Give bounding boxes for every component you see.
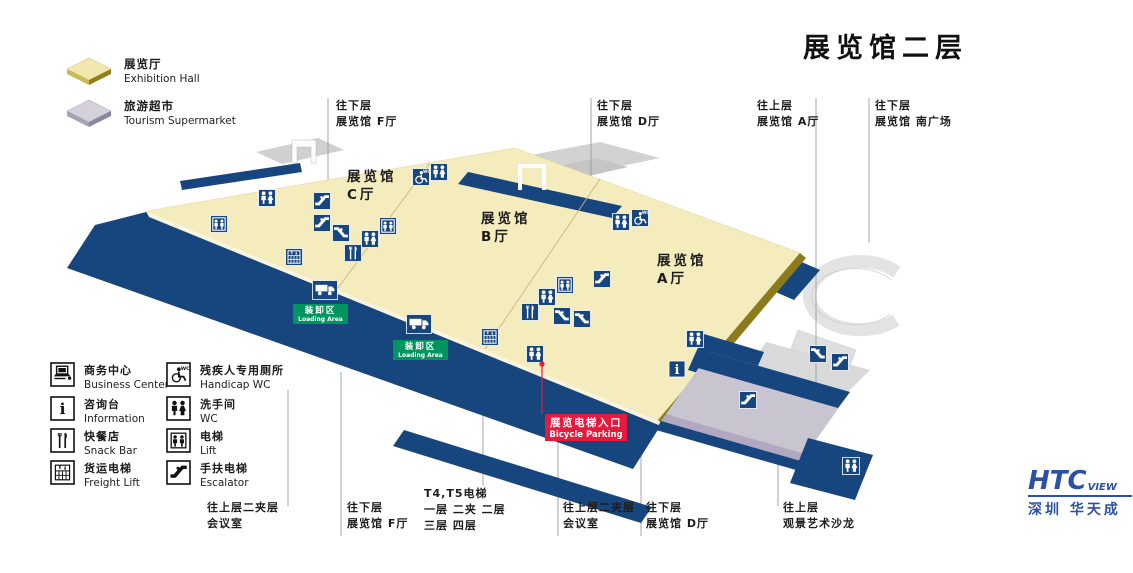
legend-cn: 残疾人专用厕所 <box>200 362 284 378</box>
callout-down-hall-f: 往下层 展览馆 F厅 <box>336 98 397 130</box>
svg-text:Loading Area: Loading Area <box>298 316 343 323</box>
freight-lift-icon <box>286 249 303 266</box>
svg-text:B厅: B厅 <box>481 229 511 245</box>
callout-down-hall-f-bottom: 往下层 展览馆 F厅 <box>347 500 408 532</box>
escalator-icon <box>594 271 611 288</box>
callout-t4-t5-lift: T4,T5电梯 一层 二夹 二层 三层 四层 <box>424 486 506 534</box>
lift-icon <box>211 216 228 233</box>
freight-lift-icon <box>50 460 75 485</box>
legend-cn: 货运电梯 <box>84 460 140 476</box>
loading-area-label: 装卸区 Loading Area <box>293 304 348 324</box>
callout-up-mezzanine-meeting: 往上层二夹层 会议室 <box>207 500 279 532</box>
wc-icon <box>527 346 544 363</box>
legend-cn: 手扶电梯 <box>200 460 249 476</box>
information-icon <box>50 396 75 421</box>
legend-item-escalator: 手扶电梯Escalator <box>166 460 249 489</box>
callout-line: 往上层 <box>757 98 819 114</box>
svg-text:装卸区: 装卸区 <box>304 305 337 316</box>
legend-item-handicap-wc: 残疾人专用厕所Handicap WC <box>166 362 284 391</box>
legend-en: Business Center <box>84 379 169 391</box>
callout-line: 往下层 <box>597 98 660 114</box>
svg-text:A厅: A厅 <box>657 271 687 287</box>
callout-down-hall-d-bottom: 往下层 展览馆 D厅 <box>646 500 709 532</box>
callout-line: 往下层 <box>875 98 952 114</box>
handicap-wc-icon <box>413 169 431 186</box>
legend-cn: 咨询台 <box>84 396 145 412</box>
callout-line: 一层 二夹 二层 <box>424 502 506 518</box>
escalator-icon <box>740 392 757 409</box>
escalator-icon <box>314 193 331 210</box>
callout-line: 展览馆 F厅 <box>347 516 408 532</box>
wc-icon <box>843 458 860 475</box>
legend-en: Snack Bar <box>84 445 137 457</box>
freight-lift-icon <box>482 329 499 346</box>
callout-line: 往上层 <box>783 500 855 516</box>
legend-item-freight-lift: 货运电梯Freight Lift <box>50 460 140 489</box>
callout-line: 展览馆 A厅 <box>757 114 819 130</box>
svg-text:C厅: C厅 <box>347 187 376 203</box>
snack-bar-icon <box>522 304 539 321</box>
svg-text:装卸区: 装卸区 <box>404 341 437 352</box>
legend-item-information: 咨询台Information <box>50 396 145 425</box>
svg-text:Bicycle Parking: Bicycle Parking <box>549 430 622 440</box>
callout-line: T4,T5电梯 <box>424 486 506 502</box>
snack-bar-icon <box>345 245 362 262</box>
escalator-down-icon <box>574 311 591 328</box>
legend-en: Handicap WC <box>200 379 284 391</box>
legend-item-business-center: 商务中心Business Center <box>50 362 169 391</box>
escalator-icon <box>166 460 191 485</box>
logo-htc-text: HTC <box>1028 468 1087 494</box>
entrance-dot <box>539 361 544 366</box>
handicap-wc-icon <box>632 210 650 227</box>
callout-line: 往下层 <box>336 98 397 114</box>
escalator-down-icon <box>554 308 571 325</box>
callout-line: 会议室 <box>207 516 279 532</box>
svg-text:展览馆: 展览馆 <box>657 252 707 269</box>
callout-up-hall-a: 往上层 展览馆 A厅 <box>757 98 819 130</box>
callout-line: 会议室 <box>563 516 635 532</box>
callout-line: 展览馆 D厅 <box>646 516 709 532</box>
logo-tagline: 深圳 华天成 <box>1028 499 1132 519</box>
legend-cn: 快餐店 <box>84 428 137 444</box>
spiral-ramp <box>809 262 897 330</box>
legend-en: Freight Lift <box>84 477 140 489</box>
callout-up-mezzanine-meeting-2: 往上层二夹层 会议室 <box>563 500 635 532</box>
svg-text:展览馆: 展览馆 <box>347 168 397 185</box>
callout-line: 展览馆 南广场 <box>875 114 952 130</box>
lift-icon <box>380 218 397 235</box>
htcview-logo: HTC VIEW 深圳 华天成 <box>1028 468 1132 519</box>
wc-icon <box>539 289 556 306</box>
callout-line: 往下层 <box>646 500 709 516</box>
callout-down-south-plaza: 往下层 展览馆 南广场 <box>875 98 952 130</box>
spiral-ramp-edge <box>812 269 891 325</box>
wc-icon <box>687 331 704 348</box>
legend-cn: 电梯 <box>200 428 224 444</box>
callout-line: 往上层二夹层 <box>207 500 279 516</box>
wc-icon <box>259 190 276 207</box>
wc-icon <box>166 396 191 421</box>
wc-icon <box>431 164 448 181</box>
lift-icon <box>557 277 574 294</box>
escalator-icon <box>832 354 849 371</box>
logo-view-text: VIEW <box>1088 483 1117 493</box>
escalator-down-icon <box>810 346 827 363</box>
information-icon <box>669 361 685 378</box>
callout-line: 往下层 <box>347 500 408 516</box>
handicap-wc-icon <box>166 362 191 387</box>
callout-line: 展览馆 D厅 <box>597 114 660 130</box>
truck-icon <box>407 315 432 334</box>
callout-line: 展览馆 F厅 <box>336 114 397 130</box>
truck-icon <box>313 281 338 300</box>
loading-area-label: 装卸区 Loading Area <box>393 340 448 360</box>
legend-en: Lift <box>200 445 224 457</box>
lift-icon <box>166 428 191 453</box>
svg-text:Loading Area: Loading Area <box>398 352 443 359</box>
callout-up-art-salon: 往上层 观景艺术沙龙 <box>783 500 855 532</box>
escalator-down-icon <box>333 225 350 242</box>
callout-line: 往上层二夹层 <box>563 500 635 516</box>
legend-en: WC <box>200 413 236 425</box>
snack-bar-icon <box>50 428 75 453</box>
callout-down-hall-d: 往下层 展览馆 D厅 <box>597 98 660 130</box>
wc-icon <box>613 214 630 231</box>
legend-en: Escalator <box>200 477 249 489</box>
callout-line: 三层 四层 <box>424 518 506 534</box>
legend-cn: 洗手间 <box>200 396 236 412</box>
legend-cn: 商务中心 <box>84 362 169 378</box>
legend-item-snack-bar: 快餐店Snack Bar <box>50 428 137 457</box>
legend-item-wc: 洗手间WC <box>166 396 236 425</box>
legend-item-lift: 电梯Lift <box>166 428 224 457</box>
wc-icon <box>362 231 379 248</box>
svg-text:展览电梯入口: 展览电梯入口 <box>550 416 622 429</box>
exhibition-floor-map-page: 展览馆二层 展览厅 Exhibition Hall 旅游超市 Tourism S… <box>0 0 1133 573</box>
escalator-icon <box>314 215 331 232</box>
svg-text:展览馆: 展览馆 <box>481 210 531 227</box>
legend-en: Information <box>84 413 145 425</box>
upper-left-band <box>180 163 302 190</box>
callout-line: 观景艺术沙龙 <box>783 516 855 532</box>
business-center-icon <box>50 362 75 387</box>
